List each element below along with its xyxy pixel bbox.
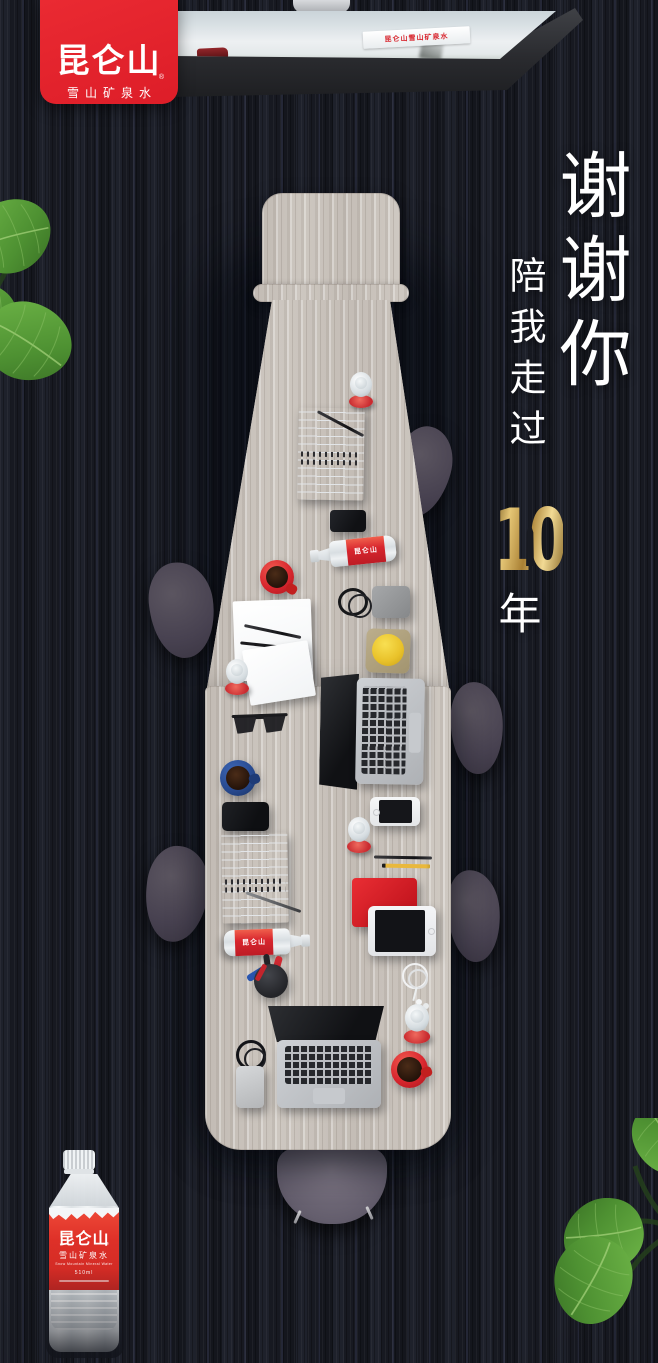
coaster bbox=[365, 628, 411, 674]
brand-logo-card: 昆仑山 ® 雪山矿泉水 bbox=[40, 0, 178, 104]
spiral-binding bbox=[225, 886, 286, 892]
laptop-screen bbox=[319, 673, 359, 790]
coffee-cup-red-1 bbox=[260, 560, 294, 594]
pen-holder bbox=[250, 956, 292, 998]
bottle-cap bbox=[405, 1004, 429, 1032]
smartphone-black-1 bbox=[330, 510, 366, 532]
laptop-keys bbox=[285, 1046, 373, 1084]
product-bottle-shoulder bbox=[49, 1174, 119, 1208]
glasses-lens bbox=[234, 716, 258, 734]
product-subtitle-en: Snow Mountain Mineral Water bbox=[49, 1262, 119, 1266]
plant-bottom-right bbox=[535, 1118, 658, 1363]
phone-screen bbox=[379, 800, 412, 823]
yellow-cup bbox=[371, 633, 404, 666]
water-bottle-top-view bbox=[348, 372, 374, 410]
external-drive-silver bbox=[236, 1066, 264, 1108]
product-subtitle: 雪山矿泉水 bbox=[49, 1250, 119, 1261]
tablet bbox=[368, 906, 436, 956]
product-bottle-cap bbox=[63, 1150, 95, 1170]
tv-monitor: 昆仑山雪山矿泉水 bbox=[155, 0, 590, 104]
coffee bbox=[266, 566, 288, 588]
laptop-keys bbox=[361, 686, 407, 775]
bottle-label: 昆仑山 bbox=[235, 929, 274, 956]
bottle-bottom-fade bbox=[46, 1268, 124, 1358]
white-earphones bbox=[400, 963, 432, 1009]
coffee bbox=[397, 1057, 422, 1082]
external-drive-gray bbox=[372, 586, 410, 618]
tablet-screen bbox=[375, 910, 425, 952]
coffee bbox=[226, 766, 250, 790]
phone-home-button bbox=[373, 809, 380, 816]
bottle-label: 昆仑山 bbox=[346, 536, 387, 566]
coffee-cup-red-2 bbox=[391, 1051, 428, 1088]
table-bottle-ring bbox=[253, 284, 409, 302]
paper-sheet-2 bbox=[242, 640, 316, 706]
brand-logo-subtitle: 雪山矿泉水 bbox=[40, 84, 178, 101]
black-cable-coil-1b bbox=[348, 594, 372, 618]
registered-mark: ® bbox=[159, 74, 164, 81]
eyeglasses bbox=[231, 709, 290, 741]
coffee-mug-blue bbox=[220, 760, 256, 796]
bottle-cap bbox=[301, 934, 310, 946]
pencil-yellow bbox=[382, 864, 430, 869]
laptop-keyboard-deck bbox=[277, 1040, 381, 1108]
water-bottle-top-view bbox=[346, 817, 372, 855]
laptop-keyboard-deck bbox=[355, 678, 425, 785]
spiral-binding bbox=[225, 878, 286, 884]
mountain-ridge-graphic bbox=[49, 1208, 119, 1221]
product-bottle: 昆仑山 ® 雪山矿泉水 Snow Mountain Mineral Water … bbox=[46, 1148, 124, 1358]
smartphone-white bbox=[370, 797, 420, 826]
tv-banner-text: 昆仑山雪山矿泉水 bbox=[384, 31, 448, 44]
spiral-binding bbox=[301, 451, 362, 457]
water-bottle-top-view bbox=[224, 659, 250, 697]
spiral-notebook-bottom bbox=[221, 832, 289, 923]
headline-main: 谢谢你 bbox=[552, 148, 626, 400]
headline-sub: 陪我走过 bbox=[502, 256, 546, 460]
brand-logo-title: 昆仑山 bbox=[40, 44, 178, 77]
tablet-home-button bbox=[428, 928, 435, 935]
bottle-label-text: 昆仑山 bbox=[242, 937, 266, 948]
anniversary-unit: 年 bbox=[496, 580, 544, 642]
registered-mark: ® bbox=[106, 1241, 109, 1246]
table-bottle-cap bbox=[262, 193, 400, 293]
bottle-cap bbox=[350, 372, 372, 397]
spiral-binding bbox=[300, 459, 361, 465]
bottle-cap bbox=[348, 817, 370, 842]
spiral-notebook-top bbox=[297, 407, 365, 500]
laptop-trackpad bbox=[313, 1088, 345, 1104]
pen bbox=[317, 410, 364, 437]
glasses-bridge bbox=[256, 716, 264, 719]
plant-top-left bbox=[0, 196, 122, 440]
product-bottle-collar bbox=[64, 1169, 94, 1174]
earphone-coil bbox=[408, 969, 428, 989]
laptop-open-1 bbox=[319, 669, 425, 795]
glasses-lens bbox=[263, 715, 287, 733]
laptop-screen bbox=[263, 1006, 389, 1042]
poster-canvas: 昆仑山雪山矿泉水 昆仑山 bbox=[0, 0, 658, 1363]
water-bottle-top-view bbox=[403, 1004, 432, 1046]
smartphone-black-2 bbox=[222, 802, 269, 831]
chair-leg bbox=[293, 1210, 301, 1224]
laptop-trackpad bbox=[409, 713, 422, 753]
bottle-cap bbox=[226, 659, 248, 684]
bottle-label-text: 昆仑山 bbox=[353, 545, 378, 557]
laptop-open-2 bbox=[261, 1006, 391, 1108]
